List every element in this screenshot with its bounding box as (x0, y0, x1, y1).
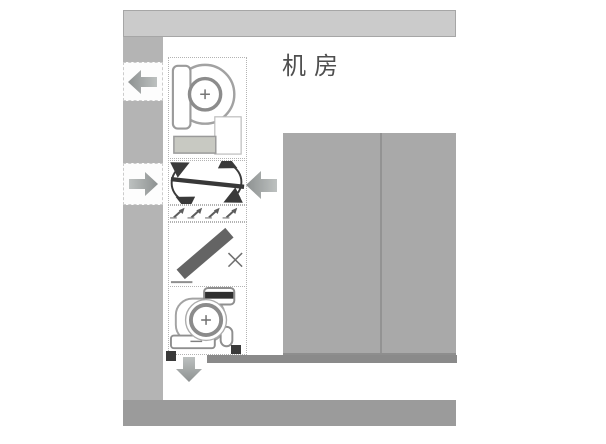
shaft-segment-bottom (123, 205, 163, 400)
rotation-arrow-left (172, 166, 183, 200)
block-seam-line (380, 133, 382, 353)
filter-pad (174, 136, 216, 153)
fan-outlet-chamber (215, 117, 241, 154)
room-label: 机房 (282, 46, 346, 81)
damper-band (205, 292, 233, 299)
rotation-arrow-right (230, 165, 241, 199)
right-arrow-icon (128, 170, 158, 198)
closed-damper-icon (169, 223, 246, 286)
shaft-inflow-cell (123, 163, 163, 205)
shaft-outflow-cell (123, 62, 163, 101)
fan-impeller (189, 79, 220, 110)
bottom-duct-bar (123, 400, 456, 426)
shaft-segment-middle (123, 101, 163, 163)
supply-fan-icon (169, 58, 246, 158)
closed-damper-cell (168, 222, 247, 287)
block-shadow-strip (207, 355, 457, 363)
supply-fan-cell (168, 57, 247, 159)
equipment-block (283, 133, 456, 355)
exhaust-down-arrow-icon (175, 357, 203, 382)
louver-grille-icon (169, 206, 246, 221)
left-arrow-icon (128, 68, 158, 96)
modulating-damper-cell (168, 160, 247, 205)
shaft-segment-top (123, 37, 163, 62)
damper-bar (181, 233, 230, 275)
modulating-damper-icon (169, 161, 246, 204)
fan-impeller (186, 300, 227, 341)
louver-tips (179, 208, 237, 214)
x-mark (228, 253, 242, 267)
return-fan-icon (169, 287, 246, 354)
hvac-machine-room-diagram: 机房 (0, 0, 606, 444)
grille-cell (168, 205, 247, 222)
damper-blade (171, 179, 244, 187)
fan-foot-right (231, 345, 241, 354)
room-left-arrow-icon (246, 168, 278, 202)
top-duct-bar (123, 10, 456, 37)
